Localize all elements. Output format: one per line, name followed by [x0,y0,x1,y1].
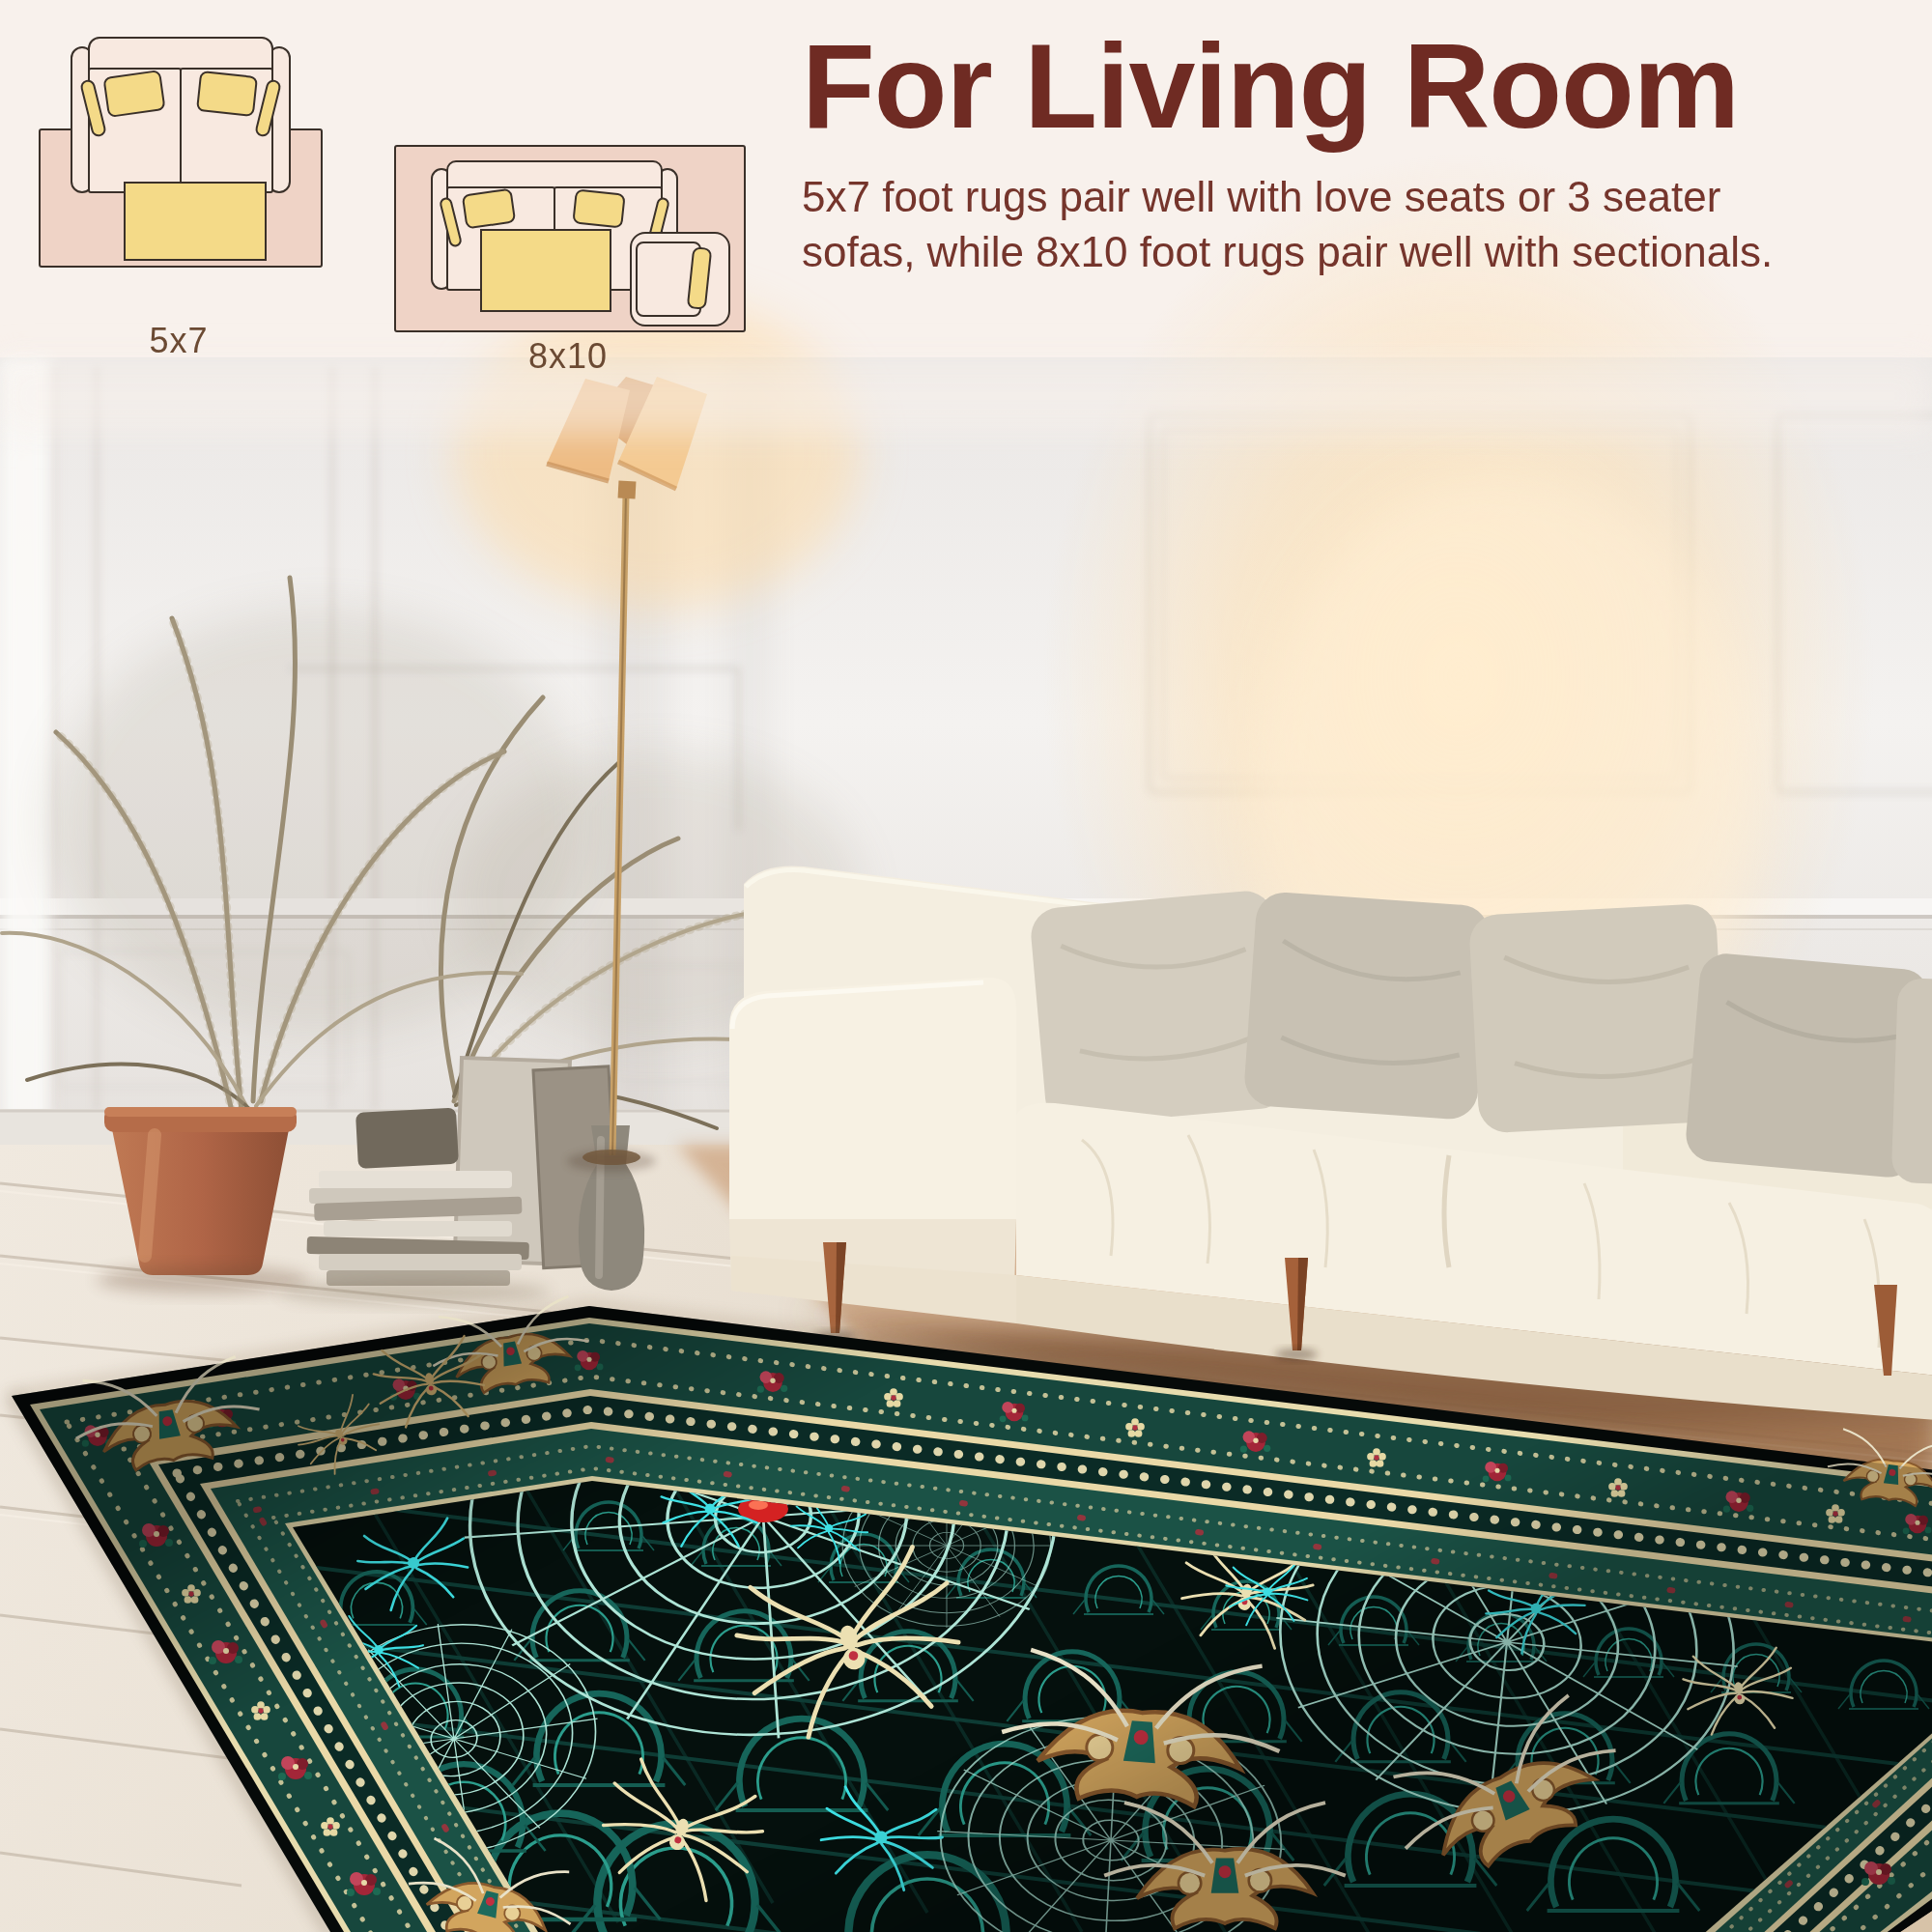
coffee-table-icon [480,229,611,312]
armchair-top-view-icon [630,232,730,327]
diagram-label-8x10: 8x10 [394,336,742,377]
loveseat-top-view-icon [71,37,291,199]
header-text: For Living Room 5x7 foot rugs pair well … [802,17,1922,279]
coffee-table-icon [124,182,267,261]
diagram-5x7: 5x7 [0,0,367,386]
description-line-1: 5x7 foot rugs pair well with love seats … [802,169,1922,224]
description-line-2: sofas, while 8x10 foot rugs pair well wi… [802,224,1922,279]
rug-infographic-page: 5x7 8x10 [0,0,1932,1932]
header: 5x7 8x10 [0,0,1932,386]
page-title: For Living Room [802,17,1922,156]
diagram-8x10: 8x10 [367,0,773,386]
diagram-label-5x7: 5x7 [39,321,319,361]
sofa-arm [729,978,1016,1219]
